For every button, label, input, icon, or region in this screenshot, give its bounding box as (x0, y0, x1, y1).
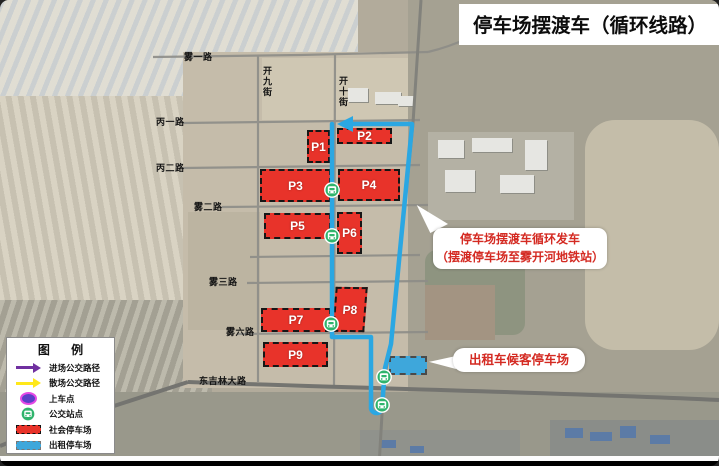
legend-row-social-parking: 社会停车场 (7, 422, 114, 438)
legend-row-bus-stop: 公交站点 (7, 407, 114, 423)
building (472, 138, 512, 152)
parking-lot-label: P4 (362, 179, 377, 191)
exit-route-arrow-icon (16, 378, 41, 388)
building (445, 170, 475, 192)
road-label-dongjilin-dalu: 东吉林大路 (199, 374, 247, 387)
building (348, 88, 368, 102)
parking-lot-p1: P1 (307, 130, 330, 163)
social-parking-icon (16, 425, 41, 434)
parking-lot-label: P3 (288, 180, 303, 192)
legend-label: 进场公交路径 (49, 362, 100, 374)
building (500, 175, 534, 193)
legend-label: 社会停车场 (49, 424, 92, 436)
taxi-callout-text: 出租车候客停车场 (469, 351, 569, 369)
road-label-kaijiu-jie: 开九街 (261, 66, 274, 98)
legend-title: 图 例 (7, 341, 114, 358)
shuttle-callout: 停车场摆渡车循环发车 （摆渡停车场至雾开河地铁站） (433, 228, 607, 269)
map-poster-frame: P1 P2 P3 P4 P5 P6 P7 P8 P9 (0, 0, 719, 466)
parking-lot-p2: P2 (337, 128, 392, 144)
road-label-wuliu-lu: 雾六路 (226, 325, 255, 338)
parking-lot-p9: P9 (263, 342, 328, 367)
village-patch (425, 285, 495, 340)
legend-row-boarding-point: 上车点 (7, 391, 114, 407)
shuttle-callout-line1: 停车场摆渡车循环发车 (460, 231, 580, 248)
page-title: 停车场摆渡车（循环线路） (459, 4, 719, 45)
building (590, 432, 612, 441)
taxi-callout: 出租车候客停车场 (453, 348, 585, 372)
parking-lot-label: P2 (357, 130, 372, 142)
road-label-wuer-lu: 雾二路 (194, 200, 223, 213)
road-label-bingyi-lu: 丙一路 (156, 115, 185, 128)
south-center-buildings-zone (360, 430, 520, 456)
boarding-point-icon (20, 392, 37, 405)
field-patch-dark (188, 212, 260, 330)
road-label-kaishi-jie: 开十街 (337, 76, 350, 108)
legend-label: 散场公交路径 (49, 377, 100, 389)
road-label-binger-lu: 丙二路 (156, 161, 185, 174)
parking-lot-label: P9 (288, 349, 303, 361)
entry-route-arrow-icon (16, 363, 41, 373)
legend-row-taxi-parking: 出租停车场 (7, 438, 114, 454)
legend-label: 公交站点 (49, 408, 83, 420)
parking-lot-label: P8 (342, 303, 358, 315)
legend-label: 上车点 (49, 393, 75, 405)
parking-lot-p5: P5 (264, 213, 331, 239)
taxi-parking-icon (16, 441, 41, 450)
building (620, 426, 636, 438)
building (380, 440, 396, 448)
bottom-white-strip (0, 456, 719, 461)
parking-lot-label: P6 (342, 227, 357, 239)
building (565, 428, 583, 438)
building (410, 446, 424, 453)
legend-label: 出租停车场 (49, 439, 92, 451)
shuttle-callout-line2: （摆渡停车场至雾开河地铁站） (436, 249, 604, 266)
building (650, 435, 670, 444)
parking-lot-label: P7 (289, 314, 304, 326)
parking-lot-p6: P6 (337, 212, 362, 254)
bus-stop-icon (21, 407, 35, 421)
building (438, 140, 464, 158)
road-label-wuyi-lu: 雾一路 (184, 50, 213, 63)
parking-lot-label: P1 (311, 141, 326, 153)
parking-lot-p8: P8 (332, 287, 368, 332)
legend-row-entry-route: 进场公交路径 (7, 360, 114, 376)
building (525, 140, 547, 170)
legend-row-exit-route: 散场公交路径 (7, 376, 114, 392)
taxi-parking-lot (389, 356, 427, 375)
southeast-buildings-zone (550, 420, 719, 456)
legend-box: 图 例 进场公交路径 散场公交路径 上车点 (6, 337, 115, 454)
building (398, 96, 414, 106)
satellite-map: P1 P2 P3 P4 P5 P6 P7 P8 P9 (0, 0, 719, 456)
parking-lot-label: P5 (290, 220, 305, 232)
road-label-wusan-lu: 雾三路 (209, 275, 238, 288)
parking-lot-p3: P3 (260, 169, 331, 202)
parking-lot-p4: P4 (338, 169, 400, 201)
campus-area (428, 132, 574, 220)
parking-lot-p7: P7 (261, 308, 331, 332)
